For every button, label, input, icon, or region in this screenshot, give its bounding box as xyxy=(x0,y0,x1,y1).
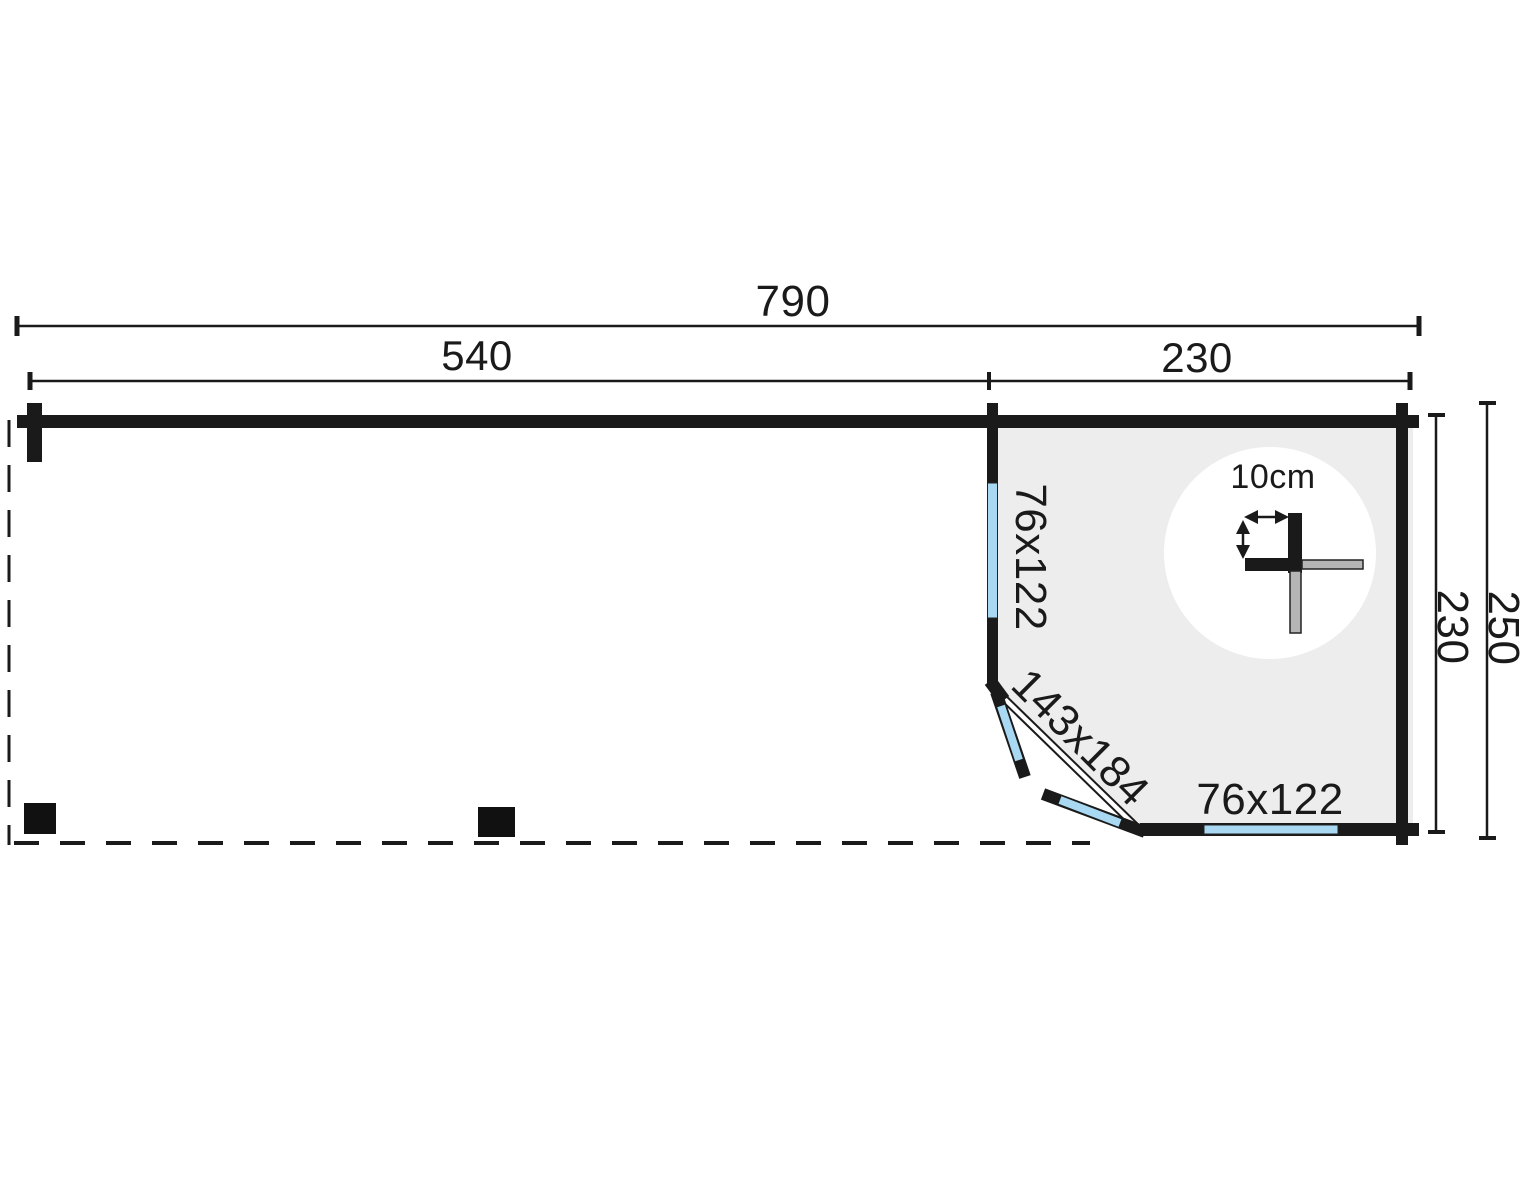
dim-label-cabin-width: 230 xyxy=(1161,337,1233,379)
dim-label-canopy-width: 540 xyxy=(441,335,513,377)
detail-wall-gray-horizontal xyxy=(1302,560,1363,569)
label-wall-thickness: 10cm xyxy=(1230,460,1315,494)
detail-wall-gray-vertical xyxy=(1290,571,1301,633)
dim-label-total-width: 790 xyxy=(756,280,831,324)
dim-label-cabin-depth: 230 xyxy=(1430,590,1474,665)
detail-wall-black-horizontal xyxy=(1245,558,1302,571)
window-left-glass xyxy=(988,483,998,618)
dim-label-total-depth: 250 xyxy=(1481,591,1525,666)
wall-top xyxy=(17,415,1419,428)
label-window-bottom-size: 76x122 xyxy=(1196,778,1343,822)
veranda-post-middle xyxy=(478,807,515,837)
floor-plan-drawing xyxy=(0,0,1536,1193)
window-bottom-glass xyxy=(1204,825,1338,834)
veranda-post-left xyxy=(24,803,56,834)
floor-plan-canvas: 790 540 230 76x122 143x184 76x122 10cm 2… xyxy=(0,0,1536,1193)
cabin-wall-right xyxy=(1396,403,1408,845)
dim-line-total-width xyxy=(17,316,1419,336)
log-end-post-left xyxy=(27,403,42,462)
label-window-left-size: 76x122 xyxy=(1008,483,1052,630)
